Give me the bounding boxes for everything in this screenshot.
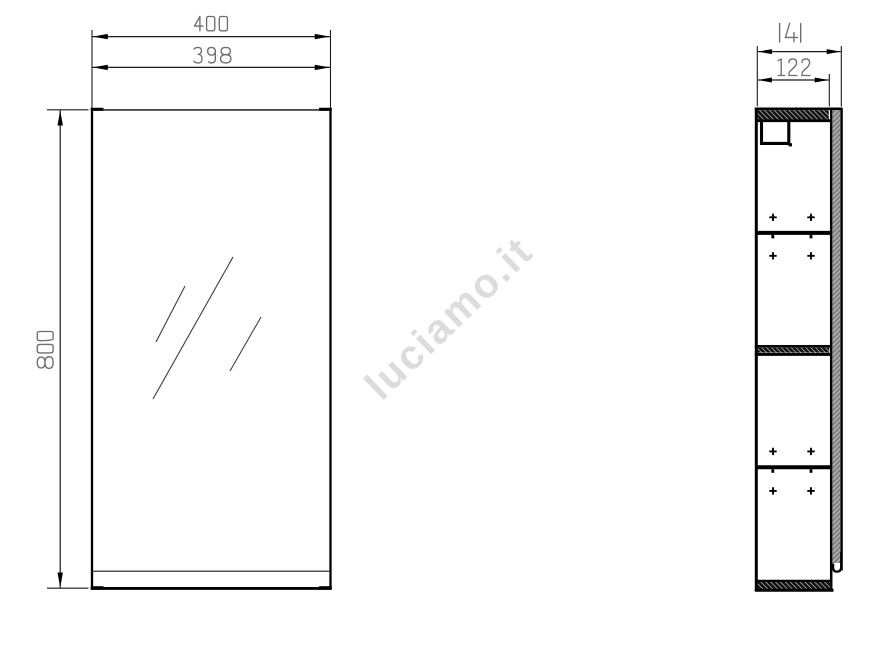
svg-text:luciamo.it: luciamo.it [356, 227, 542, 408]
